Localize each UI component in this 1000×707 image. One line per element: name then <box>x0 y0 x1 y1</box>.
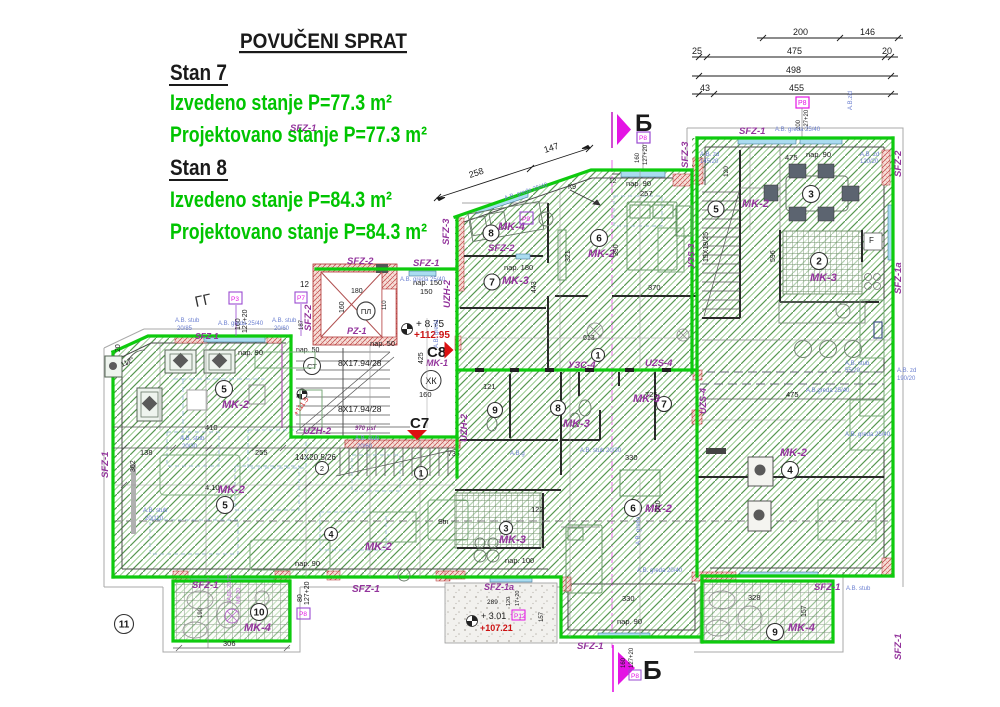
svg-text:14X20.5/26: 14X20.5/26 <box>295 453 336 462</box>
svg-text:127+20: 127+20 <box>629 647 635 668</box>
svg-text:122: 122 <box>531 505 544 514</box>
svg-text:4.10: 4.10 <box>205 483 220 492</box>
svg-text:8: 8 <box>488 229 494 240</box>
svg-text:SFZ-1: SFZ-1 <box>814 582 840 593</box>
svg-text:A.B. stub: A.B. stub <box>143 508 168 514</box>
svg-text:A.B. stub 20/30: A.B. stub 20/30 <box>580 448 622 454</box>
svg-text:MK-3: MK-3 <box>563 418 590 430</box>
svg-text:A.B. greda 25/40: A.B. greda 25/40 <box>218 321 264 327</box>
svg-text:nap. 180: nap. 180 <box>504 263 533 272</box>
svg-text:Izvedeno stanje P=77.3 m²: Izvedeno stanje P=77.3 m² <box>170 90 392 115</box>
svg-text:UZH-2: UZH-2 <box>442 279 453 308</box>
svg-text:120/20: 120/20 <box>860 159 879 165</box>
svg-text:8X17.94/28: 8X17.94/28 <box>338 358 382 368</box>
svg-text:121: 121 <box>483 382 496 391</box>
svg-text:20: 20 <box>882 46 892 56</box>
svg-text:P12: P12 <box>514 613 526 620</box>
svg-text:MK-4: MK-4 <box>498 221 525 233</box>
svg-text:UZH-2: UZH-2 <box>459 413 470 442</box>
svg-text:9: 9 <box>772 628 778 639</box>
svg-text:475: 475 <box>785 153 798 162</box>
svg-text:390: 390 <box>613 244 620 256</box>
svg-text:SFZ-1: SFZ-1 <box>739 126 765 137</box>
svg-text:306: 306 <box>223 639 236 648</box>
svg-text:A.B. zd: A.B. zd <box>897 368 916 374</box>
svg-text:725: 725 <box>645 390 658 399</box>
svg-text:443: 443 <box>531 281 538 293</box>
svg-text:SFZ-1: SFZ-1 <box>413 258 439 269</box>
svg-text:5: 5 <box>713 205 719 216</box>
svg-text:UZS-4: UZS-4 <box>645 358 673 369</box>
svg-text:43: 43 <box>700 83 710 93</box>
svg-text:120: 120 <box>723 166 730 177</box>
svg-text:SFZ-1a: SFZ-1a <box>484 582 514 592</box>
svg-text:255: 255 <box>255 448 268 457</box>
svg-text:nap. 90: nap. 90 <box>295 559 320 568</box>
svg-text:UZS-4: UZS-4 <box>698 388 708 414</box>
svg-text:A.B. stub: A.B. stub <box>272 318 297 324</box>
svg-text:A.B.g: A.B.g <box>510 451 525 457</box>
svg-text:MK-4: MK-4 <box>244 622 271 634</box>
svg-text:SFZ-1: SFZ-1 <box>192 580 218 591</box>
svg-text:A.B. stub: A.B. stub <box>845 361 870 367</box>
svg-text:2: 2 <box>320 464 324 473</box>
svg-text:200: 200 <box>793 27 808 37</box>
svg-text:362: 362 <box>130 460 137 472</box>
svg-text:nap. 90: nap. 90 <box>806 150 831 159</box>
svg-text:330: 330 <box>625 453 638 462</box>
svg-text:127+20: 127+20 <box>643 144 649 165</box>
svg-text:5: 5 <box>222 501 228 512</box>
svg-text:610: 610 <box>655 500 662 512</box>
svg-text:MK-2: MK-2 <box>588 248 615 260</box>
svg-text:SFZ-2: SFZ-2 <box>488 243 515 254</box>
svg-text:475: 475 <box>787 46 802 56</box>
svg-text:1: 1 <box>418 469 423 479</box>
svg-text:160: 160 <box>419 390 432 399</box>
svg-text:MK-3: MK-3 <box>499 534 526 546</box>
svg-text:4: 4 <box>328 530 333 540</box>
svg-text:SFZ-2: SFZ-2 <box>347 256 374 267</box>
svg-text:330: 330 <box>622 594 635 603</box>
svg-text:nap. 100: nap. 100 <box>505 556 534 565</box>
svg-text:A.B. greda 25/40: A.B. greda 25/40 <box>400 277 446 283</box>
svg-text:Izvedeno stanje P=84.3 m²: Izvedeno stanje P=84.3 m² <box>170 187 392 212</box>
svg-text:9: 9 <box>492 406 498 417</box>
svg-text:10: 10 <box>253 608 265 619</box>
svg-text:8: 8 <box>555 404 561 415</box>
svg-text:SFZ-1: SFZ-1 <box>577 641 603 652</box>
svg-text:POVUČENI SPRAT: POVUČENI SPRAT <box>240 29 407 53</box>
svg-text:A.B.greda 25/40: A.B.greda 25/40 <box>806 388 850 394</box>
svg-text:MK-2: MK-2 <box>365 541 392 553</box>
svg-text:Stan 7: Stan 7 <box>170 60 227 85</box>
svg-text:1: 1 <box>595 351 600 361</box>
svg-text:17+20: 17+20 <box>515 591 521 606</box>
svg-text:F: F <box>869 236 874 245</box>
svg-text:MK-3: MK-3 <box>810 272 837 284</box>
svg-text:MK-2: MK-2 <box>780 447 807 459</box>
svg-text:P8: P8 <box>798 100 807 107</box>
svg-text:12: 12 <box>300 280 309 289</box>
svg-text:A.B. stub: A.B. stub <box>355 436 380 442</box>
svg-text:3: 3 <box>808 190 814 201</box>
svg-text:SFZ-1: SFZ-1 <box>352 584 380 595</box>
svg-text:ГГ: ГГ <box>193 291 212 311</box>
svg-text:PZ-1: PZ-1 <box>347 326 367 336</box>
svg-text:289: 289 <box>487 599 498 606</box>
svg-text:187: 187 <box>299 319 305 330</box>
svg-text:425: 425 <box>418 352 425 364</box>
svg-text:498: 498 <box>786 65 801 75</box>
svg-text:СТ: СТ <box>307 362 317 371</box>
svg-text:ПЛ: ПЛ <box>361 307 371 316</box>
svg-text:160: 160 <box>635 152 641 163</box>
svg-text:20/110: 20/110 <box>145 516 164 522</box>
svg-text:145/20: 145/20 <box>700 159 719 165</box>
svg-text:+ 3.01: + 3.01 <box>481 611 506 621</box>
svg-text:P7: P7 <box>297 295 305 302</box>
svg-text:+ 8.75: + 8.75 <box>416 319 445 330</box>
svg-text:A.B. zd: A.B. zd <box>700 152 719 158</box>
svg-text:Б: Б <box>643 655 662 685</box>
svg-text:370: 370 <box>648 283 661 292</box>
svg-text:Stan 8: Stan 8 <box>170 155 227 180</box>
svg-text:УЗS-3: УЗS-3 <box>686 243 696 268</box>
svg-text:157: 157 <box>539 611 545 622</box>
svg-text:nap. 90: nap. 90 <box>626 179 651 188</box>
svg-text:A.B. greda: A.B. greda <box>434 319 440 348</box>
svg-text:SFZ-1: SFZ-1 <box>195 331 219 341</box>
svg-text:Stn: Stn <box>438 519 449 526</box>
svg-text:410: 410 <box>205 423 218 432</box>
svg-text:P8: P8 <box>639 135 647 142</box>
svg-text:A.B.zid: A.B.zid <box>848 91 854 110</box>
svg-text:127+20: 127+20 <box>304 581 311 605</box>
svg-text:180: 180 <box>351 288 363 295</box>
svg-text:4: 4 <box>787 466 793 477</box>
svg-text:613: 613 <box>583 335 595 342</box>
svg-text:3: 3 <box>503 524 508 534</box>
svg-text:nap. 90: nap. 90 <box>617 617 642 626</box>
svg-text:MK-2: MK-2 <box>742 198 769 210</box>
svg-text:P3: P3 <box>231 296 239 303</box>
svg-text:11: 11 <box>119 620 130 631</box>
svg-text:nap. 90: nap. 90 <box>238 348 263 357</box>
svg-text:SFZ-1: SFZ-1 <box>100 452 111 478</box>
svg-text:20/30: 20/30 <box>182 444 198 450</box>
svg-text:A.B. stub: A.B. stub <box>180 436 205 442</box>
svg-text:+107.21: +107.21 <box>480 623 513 633</box>
svg-text:110: 110 <box>382 300 388 310</box>
svg-text:P9: P9 <box>522 216 530 223</box>
svg-text:SFZ-3: SFZ-3 <box>441 218 452 245</box>
svg-text:UZH-2: UZH-2 <box>303 426 332 437</box>
svg-text:SFZ-2: SFZ-2 <box>893 150 904 177</box>
svg-text:МФ 20: МФ 20 <box>236 588 242 604</box>
svg-text:15X19/25: 15X19/25 <box>703 232 710 262</box>
svg-text:160: 160 <box>621 657 627 668</box>
svg-text:20: 20 <box>115 344 122 352</box>
svg-text:6: 6 <box>596 234 602 245</box>
svg-text:138: 138 <box>140 448 153 457</box>
svg-text:A.B. greda: A.B. greda <box>636 516 642 545</box>
svg-text:MK-3: MK-3 <box>502 275 529 287</box>
svg-text:ЗАДЕ 20/25: ЗАДЕ 20/25 <box>227 574 233 604</box>
svg-text:nap. 50: nap. 50 <box>296 347 319 354</box>
svg-text:257: 257 <box>640 189 653 198</box>
svg-text:SFZ-3: SFZ-3 <box>680 141 691 168</box>
svg-text:190/20: 190/20 <box>897 376 916 382</box>
svg-text:596: 596 <box>770 250 777 262</box>
svg-text:160: 160 <box>339 301 346 313</box>
svg-text:SFZ-1: SFZ-1 <box>893 634 904 660</box>
svg-text:20/60: 20/60 <box>274 326 290 332</box>
svg-text:146: 146 <box>860 27 875 37</box>
svg-text:SFZ-1a: SFZ-1a <box>893 262 904 294</box>
svg-text:5: 5 <box>221 385 227 396</box>
svg-text:A.B. greda 20/40: A.B. greda 20/40 <box>637 568 683 574</box>
svg-text:SFZ-1: SFZ-1 <box>290 123 316 134</box>
svg-text:12: 12 <box>609 178 617 185</box>
svg-text:MK-1: MK-1 <box>426 358 448 368</box>
svg-text:MK-2: MK-2 <box>222 399 249 411</box>
svg-text:55/20: 55/20 <box>845 368 861 374</box>
svg-text:2: 2 <box>816 257 822 268</box>
svg-text:321: 321 <box>565 250 572 262</box>
svg-text:328: 328 <box>748 593 761 602</box>
svg-text:6: 6 <box>630 504 636 515</box>
svg-text:150: 150 <box>420 287 433 296</box>
svg-text:475: 475 <box>786 390 799 399</box>
svg-text:7: 7 <box>489 278 495 289</box>
svg-text:20/85: 20/85 <box>177 326 193 332</box>
svg-text:MK-4: MK-4 <box>788 622 815 634</box>
svg-text:nap. 50: nap. 50 <box>370 339 395 348</box>
svg-text:К9: К9 <box>568 184 576 191</box>
svg-text:80: 80 <box>297 594 304 602</box>
svg-text:Projektovano stanje P=84.3 m²: Projektovano stanje P=84.3 m² <box>170 219 427 244</box>
svg-text:MK-2: MK-2 <box>218 484 245 496</box>
svg-text:A.B. stub: A.B. stub <box>175 318 200 324</box>
svg-text:C7: C7 <box>410 415 429 432</box>
svg-text:20/60: 20/60 <box>357 444 373 450</box>
svg-text:P8: P8 <box>299 611 307 618</box>
svg-text:+112.95: +112.95 <box>414 330 450 341</box>
svg-text:7: 7 <box>661 400 667 411</box>
svg-text:455: 455 <box>789 83 804 93</box>
svg-text:8X17.94/28: 8X17.94/28 <box>338 404 382 414</box>
svg-text:A.B. greda 25/40: A.B. greda 25/40 <box>775 127 821 133</box>
svg-text:P8: P8 <box>631 673 639 680</box>
svg-text:A.B. stub: A.B. stub <box>846 586 871 592</box>
svg-text:25: 25 <box>692 46 702 56</box>
svg-text:157: 157 <box>801 605 808 617</box>
svg-text:A.B. greda 25/40: A.B. greda 25/40 <box>845 432 891 438</box>
svg-text:120: 120 <box>506 597 512 606</box>
svg-text:A.B. zd: A.B. zd <box>860 152 879 158</box>
